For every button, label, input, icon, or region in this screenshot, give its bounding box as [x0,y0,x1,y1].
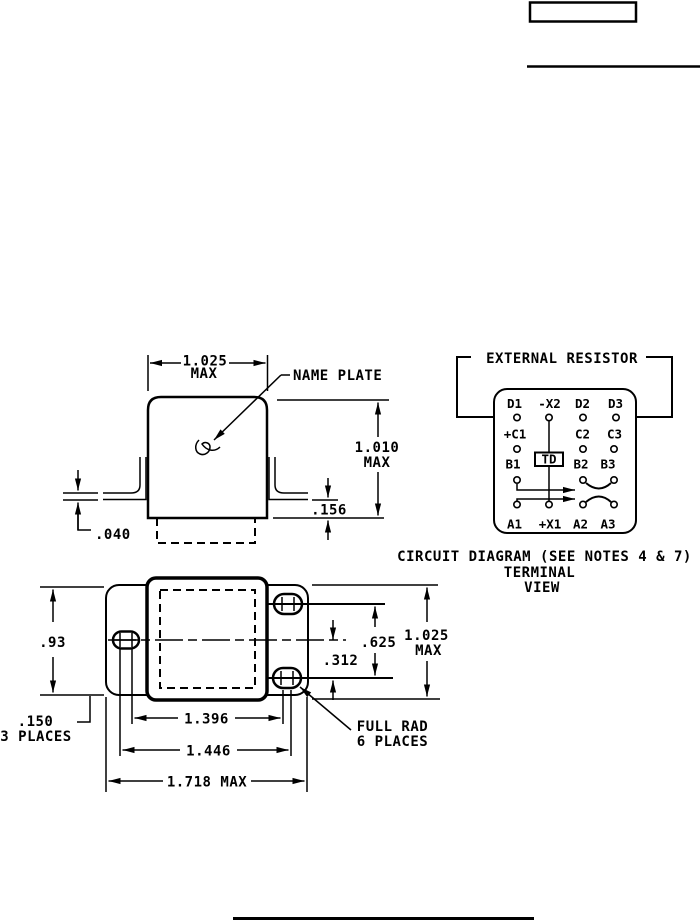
label-d1: D1 [507,396,522,411]
pin-x2 [546,414,552,420]
label-x1: +X1 [539,517,562,532]
caption-line3: VIEW [524,580,560,596]
center-offset-value: .312 [323,653,359,669]
external-resistor-label: EXTERNAL RESISTOR [486,351,638,367]
dim-flange-height: .93 [39,587,104,695]
label-b3: B3 [600,457,615,472]
pin-a3 [611,501,617,507]
relay-body-outline [148,397,267,518]
label-c3: C3 [607,427,622,442]
pin-c2 [580,446,586,452]
label-b1: B1 [505,457,520,472]
pin-x1 [546,501,552,507]
full-rad-note: FULL RAD 6 PLACES [300,687,428,750]
pin-a1 [514,501,520,507]
mounting-bracket-left [103,457,146,500]
timer-label: TD [541,452,556,467]
side-view: 1.025 MAX NAME PLATE 1.010 MAX .156 [63,354,399,544]
flange-height-value: .93 [39,635,66,651]
case-outline [147,578,267,700]
pin-a2 [580,501,586,507]
pin-d1 [514,414,520,420]
pin-b3 [611,477,617,483]
label-c1: +C1 [504,427,527,442]
caption-line1: CIRCUIT DIAGRAM (SEE NOTES 4 & 7) [397,549,692,565]
name-plate-label: NAME PLATE [293,368,382,384]
drawing-page: 1.025 MAX NAME PLATE 1.010 MAX .156 [0,0,700,924]
label-a3: A3 [600,517,615,532]
circuit-caption: CIRCUIT DIAGRAM (SEE NOTES 4 & 7) TERMIN… [397,549,692,596]
side-width-qualifier: MAX [191,366,218,382]
side-height-value: 1.010 [355,440,400,456]
circuit-diagram: EXTERNAL RESISTOR TD [397,351,692,596]
dim-standoff: .156 [311,478,347,540]
label-b2: B2 [573,457,588,472]
hidden-header-outline [157,518,255,543]
pin-c3 [611,446,617,452]
dim-hole-pitch: .625 [361,607,397,676]
label-c2: C2 [575,427,590,442]
pin-d2 [580,414,586,420]
timer-box: TD [535,452,563,467]
body-height-value: 1.025 [404,628,449,644]
dim-flange-thickness: .040 [63,470,131,543]
slot-width-places: 3 PLACES [0,729,71,745]
hole-span-outer-value: 1.446 [186,744,231,760]
pin-d3 [613,414,619,420]
side-height-qualifier: MAX [364,455,391,471]
caption-line2: TERMINAL [504,565,575,581]
mounting-bracket-right [269,457,308,500]
bottom-view: .93 .150 3 PLACES 1.396 1.446 [0,578,449,792]
pin-b1 [514,477,520,483]
hole-pitch-value: .625 [361,635,397,651]
slot-width-value: .150 [18,714,54,730]
label-a1: A1 [507,517,522,532]
dim-center-offset: .312 [323,620,359,700]
full-rad-line2: 6 PLACES [357,734,428,750]
label-d2: D2 [575,396,590,411]
slot-width-note: .150 3 PLACES [0,696,90,745]
overall-width-value: 1.718 MAX [167,775,247,791]
label-a2: A2 [573,517,588,532]
drawing-canvas: 1.025 MAX NAME PLATE 1.010 MAX .156 [0,0,700,924]
body-height-qualifier: MAX [415,643,442,659]
header-box [530,3,636,22]
label-x2: -X2 [538,396,561,411]
hole-span-inner-value: 1.396 [184,712,229,728]
full-rad-line1: FULL RAD [357,719,428,735]
pin-c1 [514,446,520,452]
dim-side-width: 1.025 MAX [148,354,268,392]
flange-thickness-value: .040 [95,527,131,543]
pin-b2 [580,477,586,483]
label-d3: D3 [608,396,623,411]
standoff-value: .156 [311,503,347,519]
